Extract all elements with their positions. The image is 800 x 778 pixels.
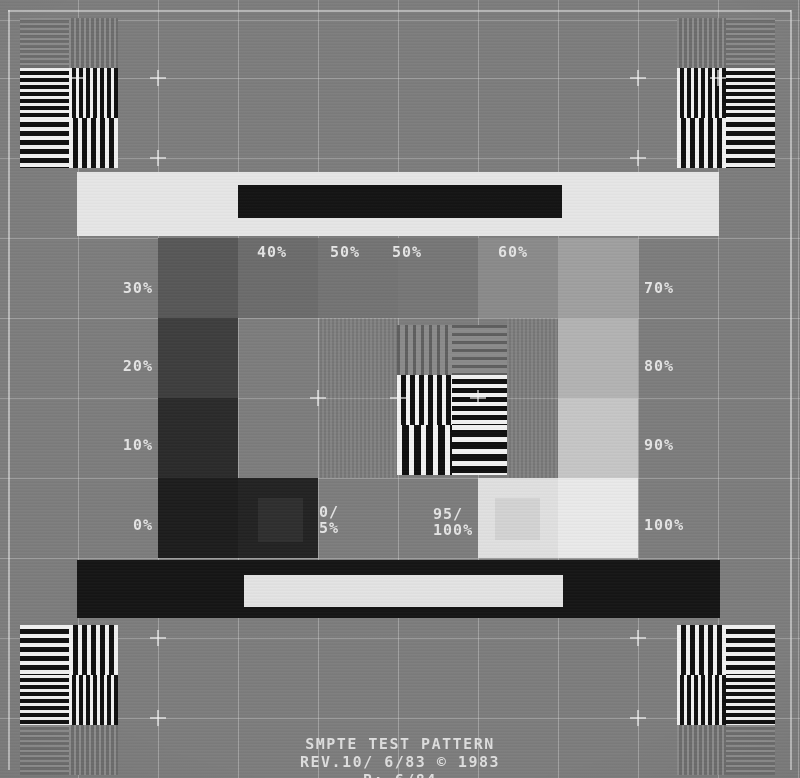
patch-0 — [158, 478, 238, 558]
low-contrast-texture-left — [318, 318, 397, 478]
crosshair-icon — [150, 710, 166, 726]
corner-grating-3-v-fine — [677, 675, 726, 725]
crosshair-icon — [630, 630, 646, 646]
crosshair-icon — [630, 70, 646, 86]
frame-line-right — [790, 10, 792, 770]
label-100: 100% — [644, 517, 734, 535]
label-10: 10% — [103, 437, 153, 455]
corner-grating-0-v-coarse — [69, 118, 118, 168]
label-90: 90% — [644, 437, 734, 455]
corner-grating-2-v-coarse — [69, 625, 118, 675]
corner-grating-1-v-low — [677, 18, 726, 68]
frame-line-top — [8, 10, 791, 12]
label-95-100: 95/100% — [433, 506, 523, 540]
smpte-test-pattern: SMPTE TEST PATTERN REV.10/ 6/83 © 1983 R… — [0, 0, 800, 778]
patch-100 — [558, 478, 638, 558]
crosshair-icon — [470, 390, 486, 406]
corner-grating-1-v-coarse — [677, 118, 726, 168]
label-80: 80% — [644, 358, 734, 376]
corner-grating-0-h-low — [20, 18, 69, 68]
crosshair-icon — [70, 70, 86, 86]
corner-grating-3-h-fine — [726, 675, 775, 725]
label-0-5-line: 0/ — [319, 504, 409, 520]
crosshair-icon — [630, 150, 646, 166]
bottom-bar-inner-white — [244, 575, 563, 607]
corner-grating-1-h-fine — [726, 68, 775, 118]
crosshair-icon — [630, 710, 646, 726]
crosshair-icon — [150, 630, 166, 646]
crosshair-icon — [390, 390, 406, 406]
patch-90 — [558, 398, 638, 478]
corner-grating-3-h-coarse — [726, 625, 775, 675]
label-0-5-line: 5% — [319, 520, 409, 536]
center-grating-v-low — [397, 325, 452, 375]
center-grating-h-low — [452, 325, 507, 375]
footer-revision-2-clipped: R: 6/84 — [0, 771, 800, 778]
label-0-5: 0/5% — [319, 504, 409, 538]
patch-10 — [158, 398, 238, 478]
crosshair-icon — [310, 390, 326, 406]
label-0: 0% — [103, 517, 153, 535]
corner-grating-1-h-low — [726, 18, 775, 68]
patch-80 — [558, 318, 638, 398]
corner-grating-0-h-coarse — [20, 118, 69, 168]
patch-0-5 — [238, 478, 318, 558]
label-20: 20% — [103, 358, 153, 376]
patch-20 — [158, 318, 238, 398]
center-grating-v-coarse — [397, 425, 452, 475]
footer-title: SMPTE TEST PATTERN — [0, 735, 800, 753]
label-60: 60% — [498, 244, 588, 262]
crosshair-icon — [150, 150, 166, 166]
corner-grating-0-h-fine — [20, 68, 69, 118]
top-bar-inner-black — [238, 185, 562, 218]
low-contrast-texture-right — [507, 318, 558, 478]
corner-grating-2-h-fine — [20, 675, 69, 725]
patch-30 — [158, 238, 238, 318]
label-95-100-line: 100% — [433, 522, 523, 538]
label-70: 70% — [644, 280, 734, 298]
center-grating-h-coarse — [452, 425, 507, 475]
footer-revision: REV.10/ 6/83 © 1983 — [0, 753, 800, 771]
crosshair-icon — [150, 70, 166, 86]
crosshair-icon — [710, 70, 726, 86]
corner-grating-0-v-low — [69, 18, 118, 68]
label-50b: 50% — [392, 244, 482, 262]
patch-0-5-inner-square — [258, 498, 303, 542]
frame-line-left — [8, 10, 10, 770]
corner-grating-3-v-coarse — [677, 625, 726, 675]
label-95-100-line: 95/ — [433, 506, 523, 522]
corner-grating-2-v-fine — [69, 675, 118, 725]
label-30: 30% — [103, 280, 153, 298]
corner-grating-1-h-coarse — [726, 118, 775, 168]
corner-grating-2-h-coarse — [20, 625, 69, 675]
